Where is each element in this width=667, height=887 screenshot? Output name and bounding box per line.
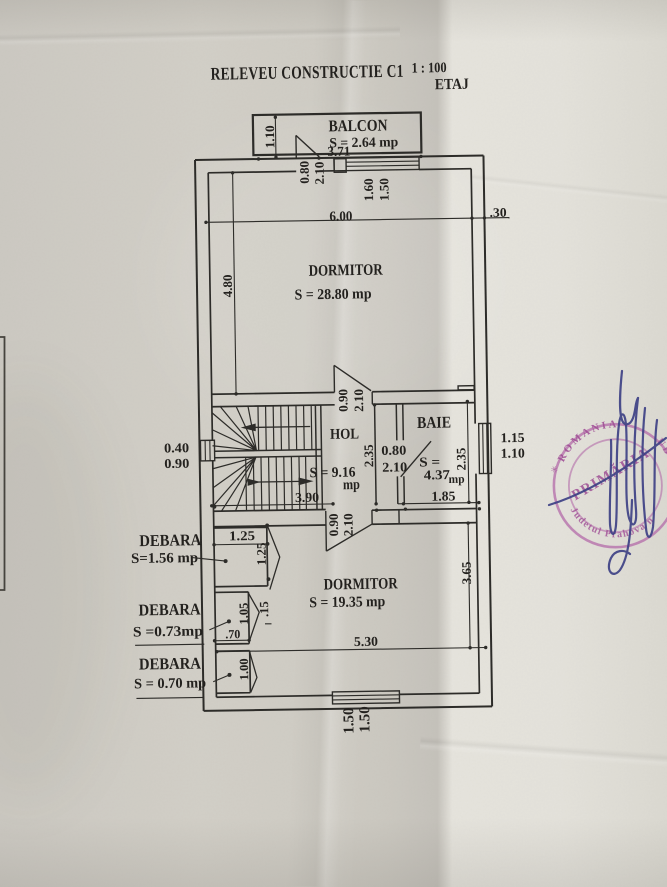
svg-text:2.10: 2.10 [340,513,355,536]
svg-text:.15: .15 [257,601,271,617]
svg-text:2.10: 2.10 [382,459,407,474]
svg-text:DEBARA: DEBARA [138,599,200,619]
svg-text:DORMITOR: DORMITOR [309,262,384,280]
svg-text:DORMITOR: DORMITOR [324,575,399,593]
svg-text:S=1.56 mp: S=1.56 mp [131,550,198,567]
svg-text:1.60: 1.60 [361,178,376,201]
svg-text:DEBARA: DEBARA [139,654,201,674]
svg-text:S = 0.70 mp: S = 0.70 mp [134,675,206,692]
svg-text:BAIE: BAIE [417,413,451,433]
svg-text:2.10: 2.10 [312,162,327,185]
svg-text:1.50: 1.50 [357,706,373,732]
svg-text:1.10: 1.10 [501,445,525,460]
svg-text:0.90: 0.90 [335,389,350,412]
svg-text:S = 19.35 mp: S = 19.35 mp [309,594,385,611]
svg-text:HOL: HOL [330,426,359,442]
svg-text:1.00: 1.00 [237,658,251,680]
svg-text:0.40: 0.40 [164,440,189,455]
svg-text:✳: ✳ [548,464,560,475]
svg-text:4.37: 4.37 [424,467,451,482]
svg-text:0.90: 0.90 [326,513,341,536]
svg-text:0.80: 0.80 [381,443,406,458]
svg-text:ROMANIA: ROMANIA [556,419,619,464]
svg-text:.30: .30 [489,205,506,220]
svg-text:1.10: 1.10 [262,125,277,148]
svg-text:2.35: 2.35 [453,447,468,470]
svg-text:1.05: 1.05 [237,603,251,625]
svg-text:3.65: 3.65 [459,561,474,584]
svg-text:1.25: 1.25 [229,528,256,543]
svg-text:mp: mp [448,472,465,486]
svg-text:3.90: 3.90 [295,490,319,505]
svg-text:0.90: 0.90 [164,456,189,471]
svg-text:5.30: 5.30 [354,634,378,649]
svg-text:S =0.73mp: S =0.73mp [133,623,203,640]
svg-text:1.50: 1.50 [376,178,391,201]
svg-text:1.50: 1.50 [341,707,357,733]
svg-text:.70: .70 [225,627,240,641]
svg-text:1.85: 1.85 [431,488,455,503]
svg-text:4.80: 4.80 [220,275,235,298]
svg-text:6.00: 6.00 [329,210,352,225]
svg-text:1.15: 1.15 [500,430,524,445]
svg-text:S = 28.80 mp: S = 28.80 mp [294,286,371,303]
svg-text:BALCON: BALCON [328,115,387,135]
svg-text:1.25: 1.25 [254,542,269,565]
svg-text:0.80: 0.80 [297,161,312,184]
svg-text:DEBARA: DEBARA [139,530,201,550]
svg-text:RELEVEU CONSTRUCTIE C1: RELEVEU CONSTRUCTIE C1 [210,61,403,84]
svg-text:1 : 100: 1 : 100 [411,60,446,77]
svg-text:mp: mp [343,477,360,493]
svg-text:2.35: 2.35 [361,444,376,467]
svg-text:2.10: 2.10 [351,389,366,412]
svg-text:ETAJ: ETAJ [435,76,469,94]
